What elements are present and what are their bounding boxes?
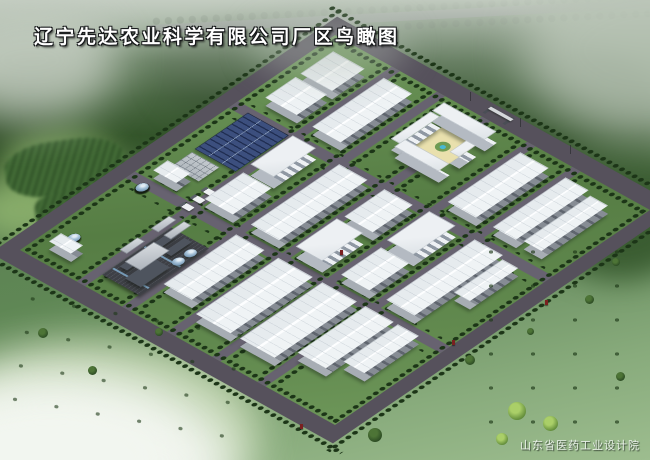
tree bbox=[38, 328, 48, 338]
birdseye-rendering: 辽宁先达农业科学有限公司厂区鸟瞰图 山东省医药工业设计院 bbox=[0, 0, 650, 460]
pedestrian-dot bbox=[300, 424, 303, 429]
utility-pole bbox=[470, 92, 471, 101]
utility-pole bbox=[570, 145, 571, 154]
pedestrian-dot bbox=[340, 250, 343, 255]
tree bbox=[543, 416, 558, 431]
utility-pole bbox=[520, 118, 521, 127]
tree bbox=[368, 428, 382, 442]
tree bbox=[496, 433, 508, 445]
tree bbox=[88, 366, 97, 375]
scattered-trees bbox=[470, 235, 650, 430]
pedestrian-dot bbox=[452, 340, 455, 345]
tree bbox=[585, 295, 594, 304]
pedestrian-dot bbox=[545, 300, 548, 305]
design-institute-credit: 山东省医药工业设计院 bbox=[520, 437, 640, 453]
tree bbox=[616, 372, 625, 381]
tree bbox=[155, 328, 163, 336]
tree bbox=[465, 355, 475, 365]
tree bbox=[612, 258, 620, 266]
tree bbox=[508, 402, 526, 420]
page-title: 辽宁先达农业科学有限公司厂区鸟瞰图 bbox=[34, 22, 400, 49]
tree bbox=[527, 328, 534, 335]
